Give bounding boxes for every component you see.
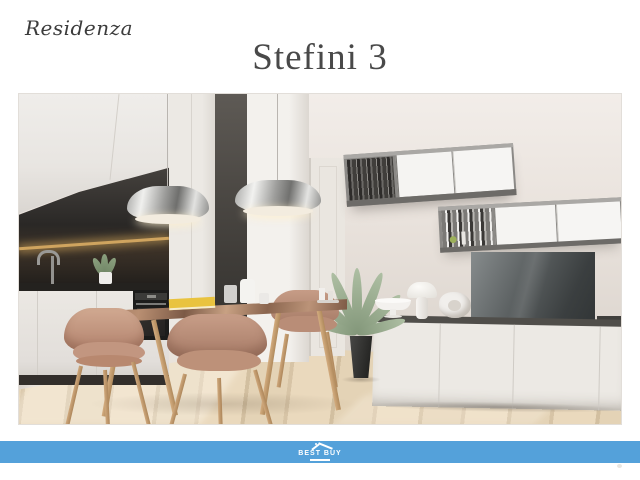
wall-shelf-unit-lower — [438, 197, 622, 253]
cabinet-seam — [598, 326, 601, 410]
oven-display — [147, 295, 156, 298]
page-title: Stefini 3 — [0, 36, 640, 79]
oven-handle — [136, 303, 166, 305]
cabinet-seam — [37, 291, 38, 375]
table-shadow — [87, 392, 359, 416]
shelf-door-panel — [452, 147, 514, 193]
pendant-lamp-diffuser — [135, 214, 201, 224]
small-cup — [259, 293, 269, 304]
tv-reflection — [471, 252, 595, 320]
pedestal-bowl-base — [384, 315, 402, 318]
small-tray — [317, 300, 339, 303]
sculpture-hole — [448, 300, 461, 311]
cabinet-seam — [438, 323, 441, 407]
sideboard-cabinets — [372, 322, 622, 411]
gray-mug — [224, 285, 237, 303]
chair-seat — [277, 316, 337, 332]
shelf-door-panel — [396, 151, 455, 197]
apartment-photo — [18, 93, 622, 425]
logo-underline — [310, 459, 330, 461]
counter-plant-pot — [99, 272, 112, 284]
house-roof-icon — [318, 442, 333, 449]
pendant-cord — [277, 94, 278, 182]
books-row — [347, 157, 396, 201]
chair-seat — [177, 350, 261, 371]
logo-text: BEST BUY — [298, 450, 342, 457]
mushroom-lamp-body — [416, 297, 428, 319]
cabinet-toe-kick — [19, 375, 169, 385]
faucet-spout — [37, 250, 60, 265]
white-pitcher — [240, 279, 255, 303]
shelf-door-panel — [494, 205, 557, 246]
best-buy-logo: BEST BUY — [298, 441, 342, 463]
mushroom-lamp-dome — [407, 282, 437, 298]
pendant-cord — [167, 94, 168, 188]
pendant-lamp-diffuser — [243, 206, 313, 216]
page-number-dot — [617, 464, 622, 468]
books-row — [441, 208, 493, 248]
shelf-door-panel — [556, 201, 622, 242]
pedestal-bowl-rim — [375, 298, 411, 303]
cabinet-seam — [512, 325, 515, 409]
bottle-decor — [461, 231, 466, 244]
